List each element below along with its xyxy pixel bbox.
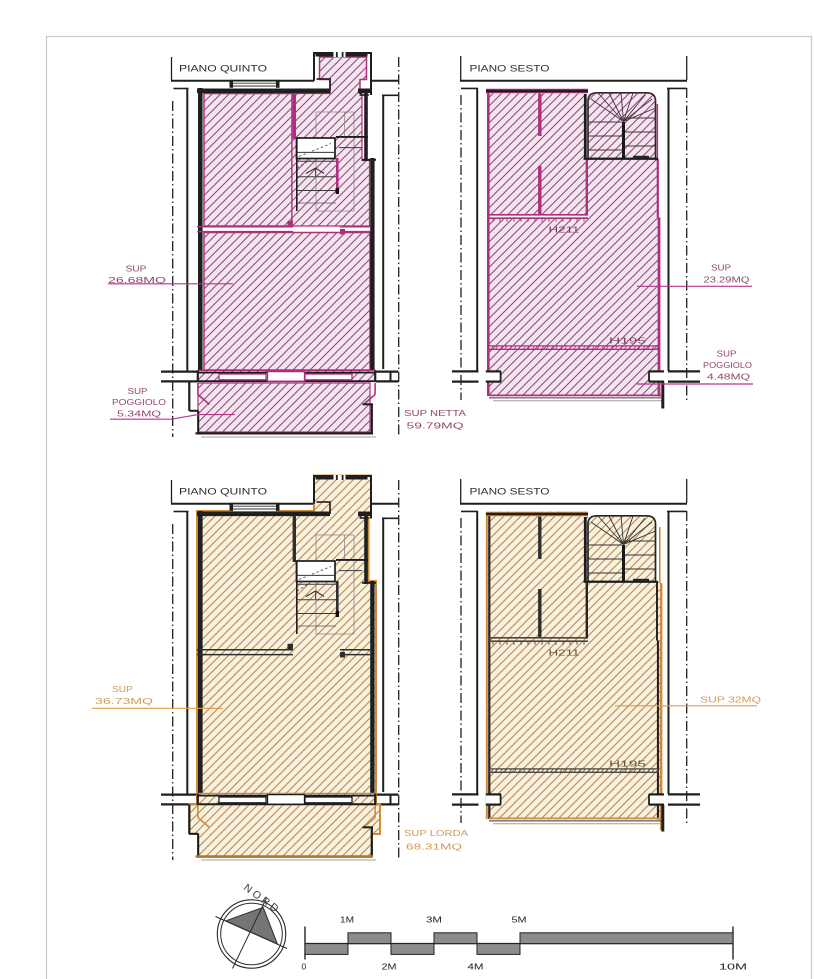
svg-text:POGGIOLO: POGGIOLO — [112, 398, 166, 407]
svg-text:SUP 32MQ: SUP 32MQ — [700, 696, 761, 705]
svg-text:SUP LORDA: SUP LORDA — [404, 829, 469, 838]
svg-text:4M: 4M — [468, 962, 484, 972]
svg-text:SUP: SUP — [128, 387, 148, 396]
svg-text:5M: 5M — [512, 915, 527, 925]
svg-text:POGGIOLO: POGGIOLO — [703, 361, 752, 370]
svg-text:H195: H195 — [609, 336, 647, 346]
svg-text:10M: 10M — [719, 962, 747, 972]
svg-text:H211: H211 — [549, 647, 581, 657]
svg-text:1M: 1M — [340, 915, 354, 925]
svg-text:SUP: SUP — [717, 350, 737, 359]
svg-text:2M: 2M — [382, 962, 397, 972]
svg-text:0: 0 — [302, 962, 307, 972]
svg-text:H195: H195 — [609, 759, 647, 769]
svg-text:H211: H211 — [549, 224, 581, 234]
svg-text:36.73MQ: 36.73MQ — [95, 697, 153, 706]
svg-text:59.79MQ: 59.79MQ — [407, 422, 464, 431]
svg-text:PIANO SESTO: PIANO SESTO — [470, 487, 550, 497]
svg-text:PIANO QUINTO: PIANO QUINTO — [179, 487, 267, 497]
svg-text:23.29MQ: 23.29MQ — [704, 276, 750, 285]
svg-text:3M: 3M — [426, 915, 442, 925]
svg-text:PIANO QUINTO: PIANO QUINTO — [179, 64, 267, 74]
svg-text:SUP: SUP — [711, 264, 731, 273]
svg-text:5.34MQ: 5.34MQ — [117, 410, 161, 419]
svg-text:SUP: SUP — [126, 265, 147, 274]
svg-text:68.31MQ: 68.31MQ — [406, 843, 462, 852]
svg-text:SUP: SUP — [112, 685, 133, 694]
svg-text:4.48MQ: 4.48MQ — [707, 373, 750, 382]
svg-text:SUP NETTA: SUP NETTA — [404, 409, 467, 418]
svg-text:PIANO SESTO: PIANO SESTO — [470, 64, 550, 74]
